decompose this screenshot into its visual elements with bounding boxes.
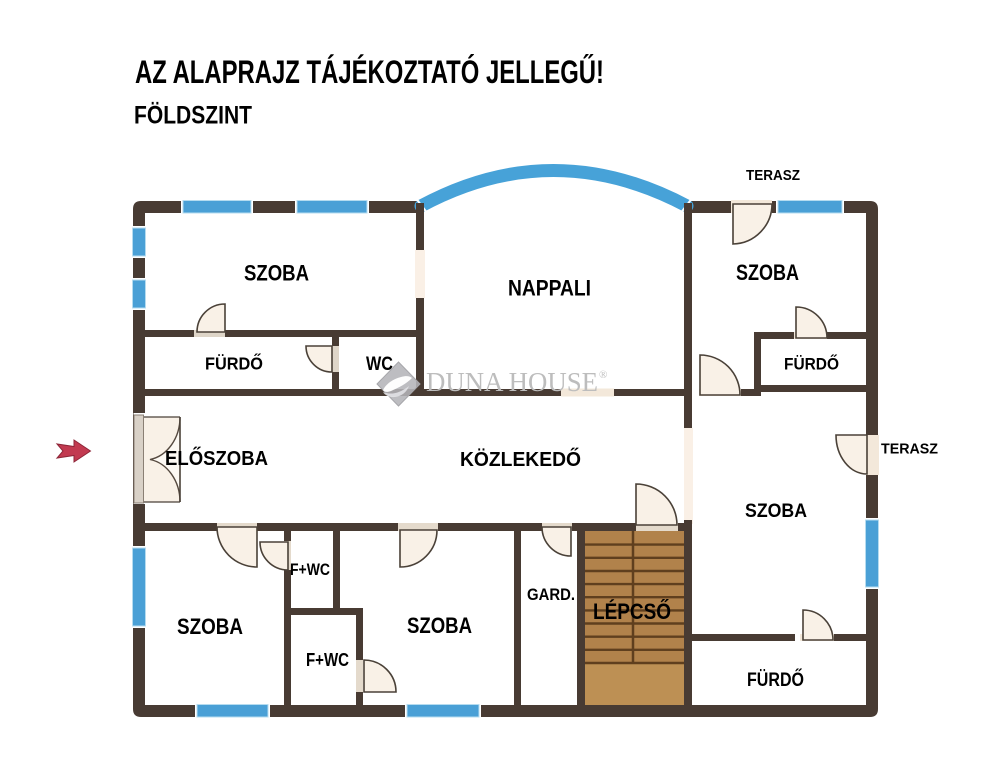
svg-text:®: ®: [599, 369, 607, 381]
svg-text:ELŐSZOBA: ELŐSZOBA: [165, 447, 268, 470]
svg-text:FÜRDŐ: FÜRDŐ: [784, 355, 839, 374]
svg-text:TERASZ: TERASZ: [746, 167, 800, 184]
svg-text:AZ ALAPRAJZ TÁJÉKOZTATÓ JELLEG: AZ ALAPRAJZ TÁJÉKOZTATÓ JELLEGŰ!: [135, 53, 604, 90]
svg-text:SZOBA: SZOBA: [407, 613, 472, 638]
svg-text:FÜRDŐ: FÜRDŐ: [205, 353, 263, 374]
svg-text:FÜRDŐ: FÜRDŐ: [747, 669, 804, 691]
svg-text:GARD.: GARD.: [527, 585, 575, 604]
svg-text:FÖLDSZINT: FÖLDSZINT: [134, 101, 252, 130]
svg-text:F+WC: F+WC: [290, 560, 330, 579]
svg-text:KÖZLEKEDŐ: KÖZLEKEDŐ: [460, 448, 581, 471]
svg-text:TERASZ: TERASZ: [881, 441, 938, 458]
svg-text:NAPPALI: NAPPALI: [508, 276, 591, 301]
svg-text:DUNA HOUSE: DUNA HOUSE: [426, 366, 598, 397]
svg-text:LÉPCSŐ: LÉPCSŐ: [593, 599, 671, 624]
svg-text:F+WC: F+WC: [306, 650, 349, 670]
svg-text:SZOBA: SZOBA: [244, 261, 309, 286]
svg-text:SZOBA: SZOBA: [177, 614, 243, 639]
svg-text:SZOBA: SZOBA: [745, 501, 807, 522]
svg-text:SZOBA: SZOBA: [736, 260, 799, 285]
